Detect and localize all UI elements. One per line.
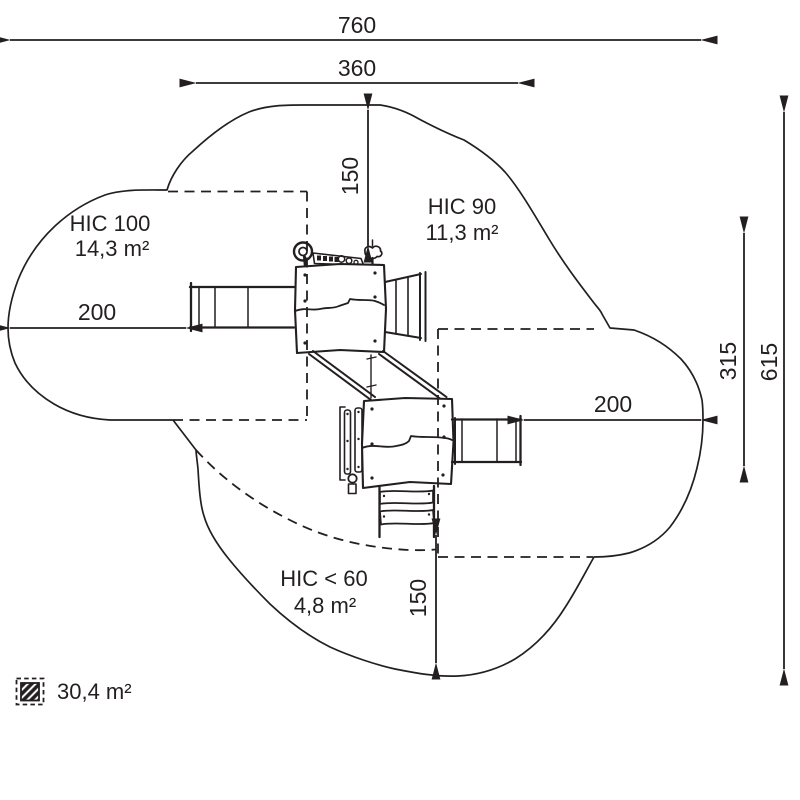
right-bridge (452, 416, 521, 465)
left-bridge (190, 283, 294, 331)
dim-left-clearance: 200 (78, 299, 116, 325)
plan-drawing: 760 360 150 200 200 150 315 615 HIC 100 … (0, 0, 800, 800)
hic60-area: 4,8 m² (294, 593, 356, 618)
dimension-lines (10, 40, 784, 669)
hic100-name: HIC 100 (70, 211, 151, 236)
upper-platform (295, 264, 386, 353)
hatched-square-icon-fill (21, 683, 39, 701)
play-structure (190, 240, 521, 537)
zone-label-hic90: HIC 90 11,3 m² (426, 194, 499, 245)
dim-right-total-span: 615 (756, 343, 782, 381)
slide (380, 486, 435, 537)
lower-platform (362, 398, 454, 488)
dim-total-width: 760 (338, 12, 376, 38)
connecting-bridge (309, 351, 447, 400)
zone-label-hic100: HIC 100 14,3 m² (70, 211, 151, 261)
hic90-area: 11,3 m² (426, 220, 499, 245)
dim-upper-width: 360 (338, 55, 376, 81)
dim-right-clearance: 200 (594, 391, 632, 417)
hic100-area: 14,3 m² (75, 236, 150, 261)
ladder-fitting (348, 474, 356, 482)
climbing-net (385, 272, 426, 341)
hic60-name: HIC < 60 (280, 566, 367, 591)
legend-total-area: 30,4 m² (57, 679, 132, 704)
dim-right-inner-span: 315 (715, 342, 741, 380)
legend: 30,4 m² (17, 679, 132, 705)
steering-wheel (294, 243, 312, 269)
playground-safety-plan: 760 360 150 200 200 150 315 615 HIC 100 … (0, 0, 800, 800)
dim-top-clearance: 150 (337, 157, 363, 195)
zone-label-hic60: HIC < 60 4,8 m² (280, 566, 367, 618)
entry-ladder (340, 407, 362, 494)
hic90-name: HIC 90 (428, 194, 496, 219)
dim-bottom-clearance: 150 (405, 579, 431, 617)
